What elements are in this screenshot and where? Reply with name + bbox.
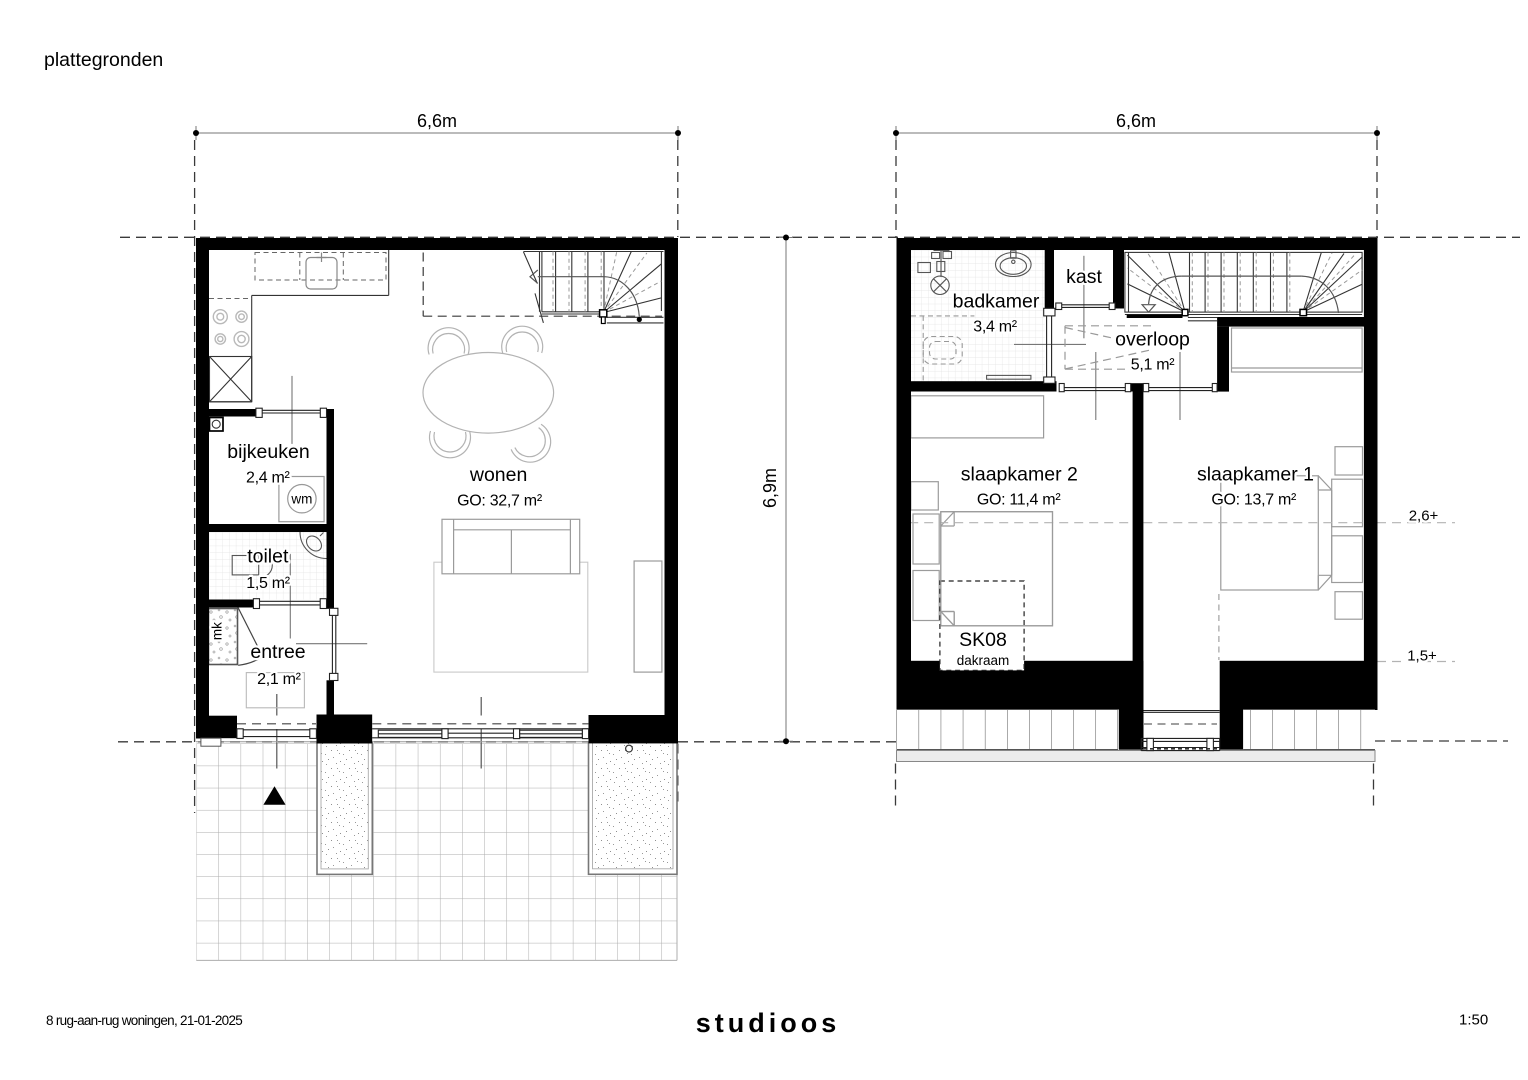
svg-text:plattegronden: plattegronden xyxy=(44,49,163,71)
svg-text:entree: entree xyxy=(250,641,305,663)
svg-text:1,5 m²: 1,5 m² xyxy=(246,575,291,592)
svg-text:1,5+: 1,5+ xyxy=(1407,648,1437,665)
svg-text:GO: 11,4 m²: GO: 11,4 m² xyxy=(977,492,1062,509)
svg-text:8 rug-aan-rug woningen, 21-01-: 8 rug-aan-rug woningen, 21-01-2025 xyxy=(46,1013,242,1028)
svg-text:bijkeuken: bijkeuken xyxy=(227,441,309,463)
svg-text:dakraam: dakraam xyxy=(957,653,1010,668)
svg-text:kast: kast xyxy=(1066,266,1102,288)
svg-text:wm: wm xyxy=(290,492,312,507)
svg-text:slaapkamer 1: slaapkamer 1 xyxy=(1197,464,1314,486)
svg-text:toilet: toilet xyxy=(247,546,289,568)
svg-text:6,6m: 6,6m xyxy=(1116,111,1156,131)
svg-text:2,4 m²: 2,4 m² xyxy=(246,470,291,487)
svg-text:5,1 m²: 5,1 m² xyxy=(1131,357,1176,374)
svg-text:GO: 32,7 m²: GO: 32,7 m² xyxy=(457,493,543,510)
svg-text:wonen: wonen xyxy=(469,464,527,486)
svg-text:GO: 13,7 m²: GO: 13,7 m² xyxy=(1211,492,1297,509)
svg-text:3,4 m²: 3,4 m² xyxy=(973,319,1018,336)
svg-text:2,6+: 2,6+ xyxy=(1409,508,1439,525)
svg-text:6,9m: 6,9m xyxy=(760,468,780,508)
svg-text:mk: mk xyxy=(210,622,225,640)
svg-text:6,6m: 6,6m xyxy=(417,111,457,131)
svg-text:2,1 m²: 2,1 m² xyxy=(257,671,302,688)
svg-text:SK08: SK08 xyxy=(959,629,1007,651)
svg-text:slaapkamer 2: slaapkamer 2 xyxy=(961,464,1078,486)
svg-text:badkamer: badkamer xyxy=(953,291,1040,313)
svg-text:1:50: 1:50 xyxy=(1459,1012,1488,1029)
svg-text:overloop: overloop xyxy=(1115,329,1190,351)
svg-text:studioos: studioos xyxy=(696,1008,841,1038)
